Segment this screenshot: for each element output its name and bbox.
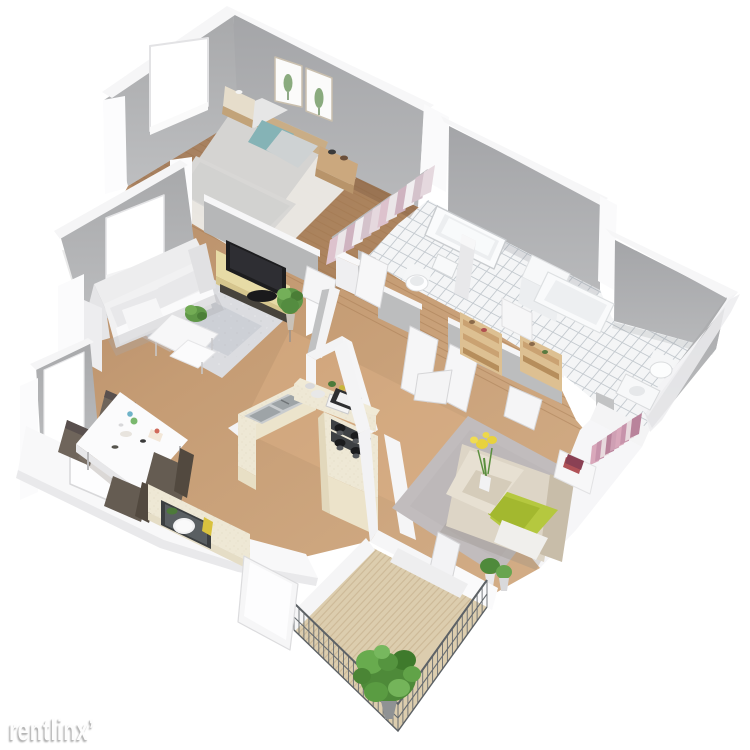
svg-text:rentlinx’: rentlinx’ [9, 714, 95, 747]
